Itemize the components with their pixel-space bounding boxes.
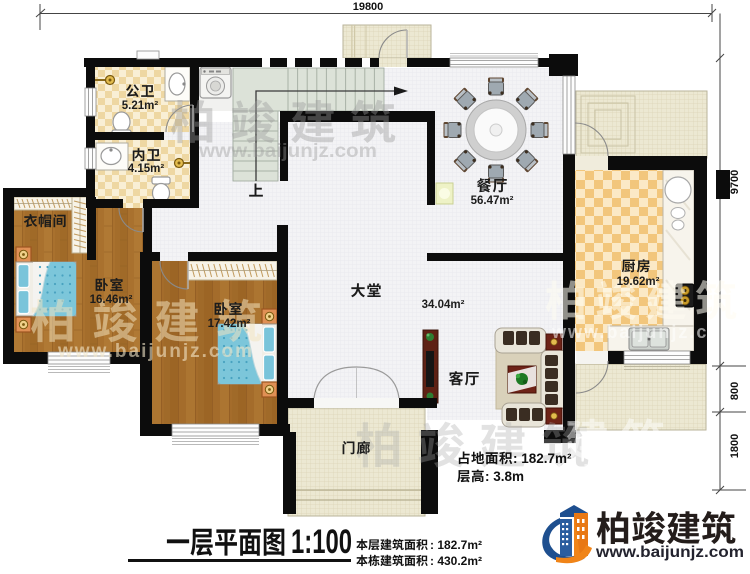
svg-text:4.15m²: 4.15m² <box>128 163 165 175</box>
svg-text:: 182.7m²: : 182.7m² <box>513 451 572 466</box>
svg-text:www.baijunjz.com: www.baijunjz.com <box>595 544 744 561</box>
svg-text:34.04m²: 34.04m² <box>422 299 465 311</box>
svg-text:www.baijunjz.com: www.baijunjz.com <box>198 140 377 162</box>
svg-text:5.21m²: 5.21m² <box>122 100 159 112</box>
svg-text:17.42m²: 17.42m² <box>208 318 251 330</box>
svg-text:: 182.7m²: : 182.7m² <box>430 538 482 552</box>
svg-text:www.baijunjz.com: www.baijunjz.com <box>551 322 739 342</box>
svg-text:: 430.2m²: : 430.2m² <box>430 554 482 568</box>
svg-text:16.46m²: 16.46m² <box>90 294 133 306</box>
svg-text:19.62m²: 19.62m² <box>617 276 660 288</box>
svg-text:19800: 19800 <box>353 1 384 13</box>
svg-text:56.47m²: 56.47m² <box>471 195 514 207</box>
svg-text:800: 800 <box>729 382 741 400</box>
svg-text:1800: 1800 <box>729 434 741 458</box>
svg-text:www.baijunjz.com: www.baijunjz.com <box>57 341 254 362</box>
svg-text:9700: 9700 <box>729 170 741 194</box>
svg-text:1:100: 1:100 <box>291 523 352 561</box>
svg-text:: 3.8m: : 3.8m <box>485 469 524 484</box>
